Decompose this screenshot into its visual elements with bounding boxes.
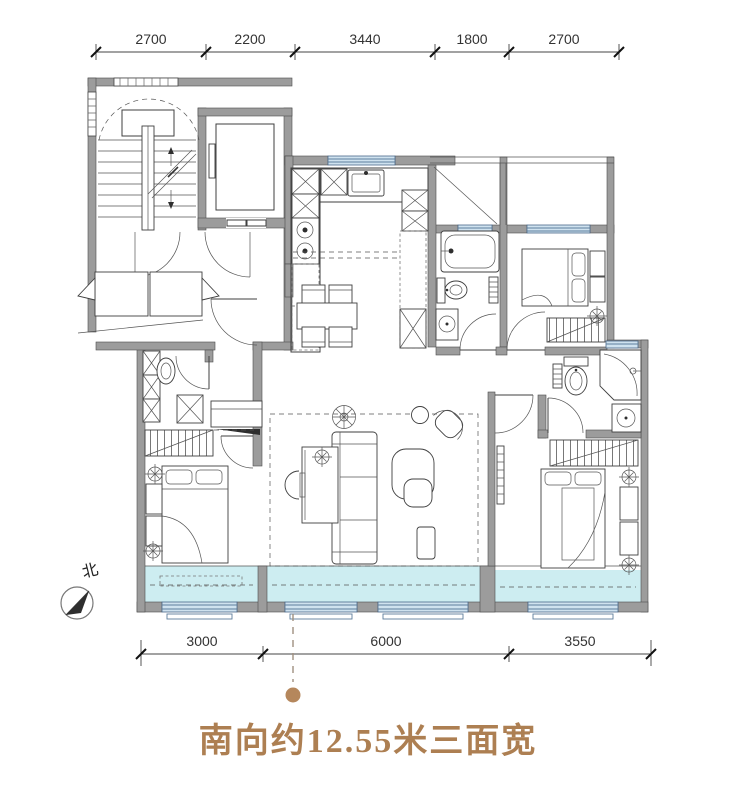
nightstand [620, 487, 638, 520]
bathroom-ensuite [548, 350, 641, 433]
toilet [437, 278, 467, 303]
dim-label: 3000 [186, 633, 217, 649]
living-room [270, 403, 478, 566]
dim-label: 3550 [564, 633, 595, 649]
ensuite-window [606, 341, 638, 348]
dim-label: 2200 [234, 31, 265, 47]
entry-lobby [78, 232, 257, 345]
bed [541, 469, 605, 568]
nightstand [620, 522, 638, 555]
dim-label: 2700 [135, 31, 166, 47]
dining-chair [302, 327, 325, 347]
ceiling-light-icon [619, 467, 639, 487]
bedroom-door [221, 436, 253, 468]
bathtub [441, 231, 499, 272]
suite-door [495, 395, 533, 433]
vent-grille [88, 78, 178, 136]
sink [436, 309, 458, 340]
elevator [209, 124, 274, 226]
bedroom-southeast [541, 440, 639, 575]
south-balcony [145, 566, 641, 604]
bedroom-ne-window [527, 225, 590, 233]
bench-cabinet [211, 401, 262, 435]
towel-radiator [553, 364, 562, 388]
caption: 南向约12.55米三面宽 [199, 721, 538, 760]
bedroom-northeast [507, 249, 607, 350]
dimension-bottom: 3000 6000 3550 [136, 633, 656, 666]
callout-dot [286, 688, 301, 703]
dim-label: 3440 [349, 31, 380, 47]
sink [612, 404, 641, 432]
dining-chair [329, 285, 352, 305]
ceiling-fan-icon [333, 406, 356, 429]
side-table [417, 527, 435, 559]
kitchen-window [328, 156, 395, 165]
dining-chair [302, 285, 325, 305]
bed [522, 249, 588, 306]
ensuite-door [548, 398, 583, 433]
powder-door [176, 356, 209, 389]
bathroom-west [143, 351, 262, 435]
bathroom-north [436, 231, 499, 350]
nightstand [590, 277, 605, 302]
wardrobe [145, 430, 213, 456]
stool [412, 407, 429, 424]
stove [292, 218, 319, 264]
south-windows [162, 602, 618, 619]
dining-chair [329, 327, 352, 347]
wardrobe [550, 440, 638, 466]
radiator [497, 446, 504, 504]
dim-label: 1800 [456, 31, 487, 47]
towel-radiator [489, 277, 498, 303]
nightstand [590, 251, 605, 276]
stairwell [98, 99, 199, 230]
lobby-door-leaf [150, 272, 202, 316]
dim-label: 2700 [548, 31, 579, 47]
toilet [564, 357, 588, 395]
bedroom-southwest [143, 430, 253, 563]
equipment-balcony [430, 157, 614, 225]
wash-basin [157, 358, 175, 384]
coffee-table [392, 449, 434, 507]
washing-machine [177, 395, 203, 423]
nightstand [146, 484, 162, 514]
nightstand [146, 516, 162, 546]
unit-entry-door [211, 299, 257, 345]
armchair [429, 403, 469, 443]
bedroom-door [507, 312, 545, 350]
floorplan-page: 2700 2200 3440 1800 2700 3000 6000 3550 … [0, 0, 740, 797]
north-indicator: 北 [61, 560, 100, 619]
dim-label: 6000 [370, 633, 401, 649]
shower [600, 350, 641, 400]
desk [302, 447, 338, 523]
dining-area [297, 285, 357, 347]
callout-line [286, 614, 301, 703]
lobby-door-leaf [95, 272, 148, 316]
bed [162, 466, 228, 563]
sofa [332, 432, 377, 564]
suite-hallway [495, 395, 533, 504]
dining-table [297, 303, 357, 329]
bathroom-door [460, 314, 496, 350]
floor-plan-canvas: 2700 2200 3440 1800 2700 3000 6000 3550 … [0, 0, 740, 797]
kitchen-sink [348, 170, 384, 196]
north-label: 北 [80, 560, 100, 581]
wardrobe [547, 318, 605, 342]
dimension-top: 2700 2200 3440 1800 2700 [91, 31, 624, 60]
